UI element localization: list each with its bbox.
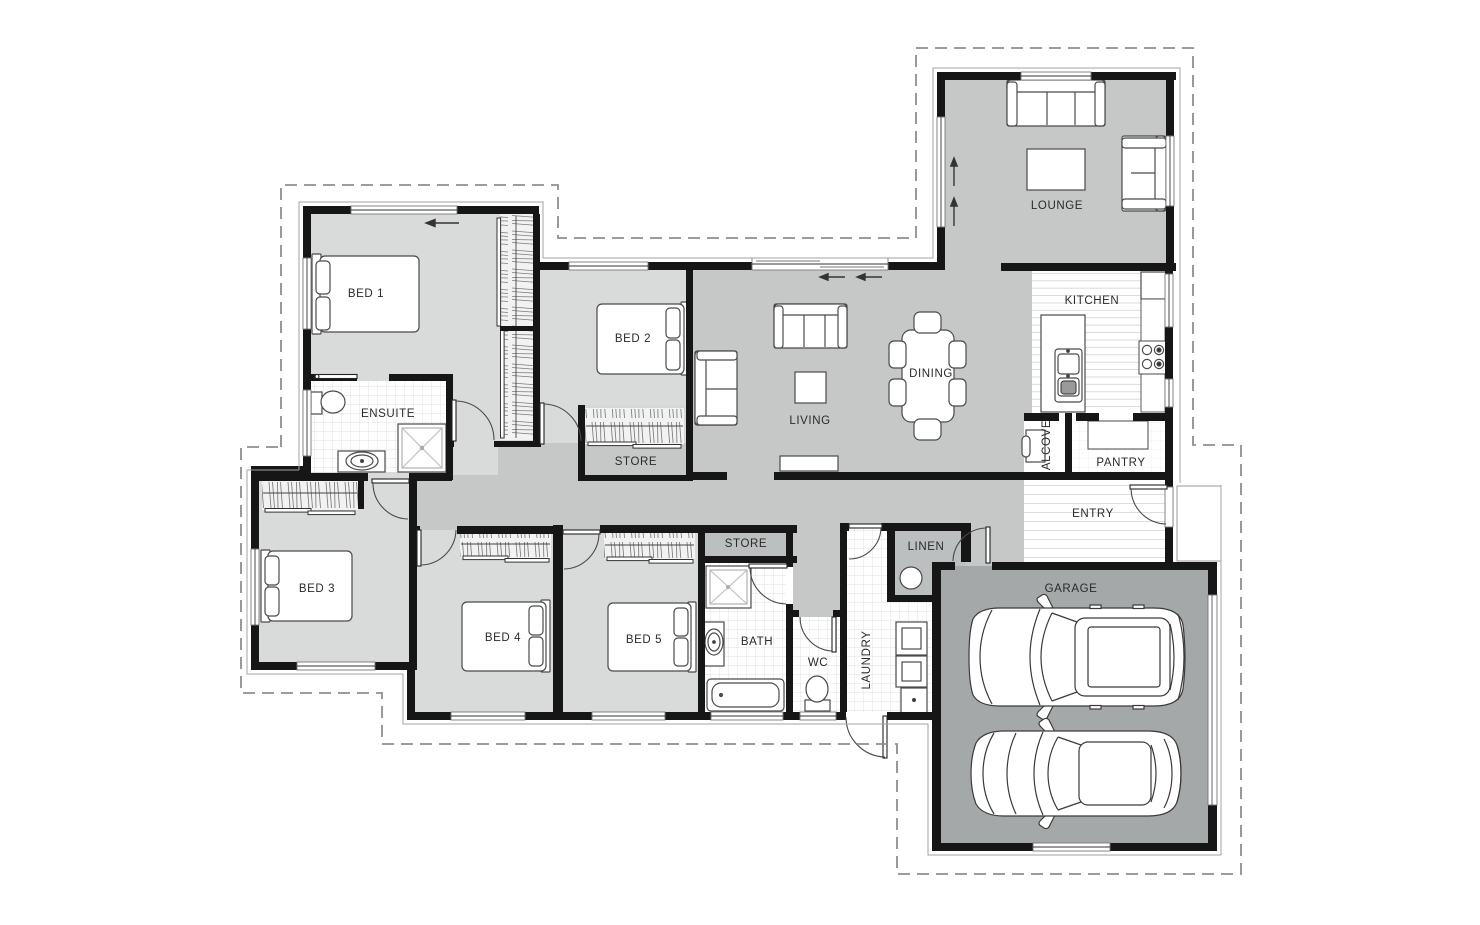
svg-text:BED 3: BED 3 xyxy=(299,583,335,595)
svg-text:DINING: DINING xyxy=(909,368,953,380)
svg-text:ALCOVE: ALCOVE xyxy=(1041,420,1053,470)
svg-text:BED 1: BED 1 xyxy=(348,288,384,300)
svg-text:LINEN: LINEN xyxy=(908,541,945,553)
svg-text:BED 2: BED 2 xyxy=(615,333,651,345)
svg-text:ENSUITE: ENSUITE xyxy=(361,408,415,420)
svg-text:LAUNDRY: LAUNDRY xyxy=(861,631,873,690)
svg-text:PANTRY: PANTRY xyxy=(1096,457,1145,469)
svg-text:STORE: STORE xyxy=(725,538,767,550)
svg-text:BED 4: BED 4 xyxy=(485,632,521,644)
svg-text:LIVING: LIVING xyxy=(789,415,830,427)
svg-text:ENTRY: ENTRY xyxy=(1072,508,1114,520)
svg-text:STORE: STORE xyxy=(615,456,657,468)
svg-text:BED 5: BED 5 xyxy=(626,634,662,646)
svg-text:WC: WC xyxy=(808,657,828,669)
svg-text:GARAGE: GARAGE xyxy=(1045,583,1098,595)
svg-text:KITCHEN: KITCHEN xyxy=(1065,295,1120,307)
svg-text:BATH: BATH xyxy=(741,636,773,648)
svg-text:LOUNGE: LOUNGE xyxy=(1031,200,1083,212)
